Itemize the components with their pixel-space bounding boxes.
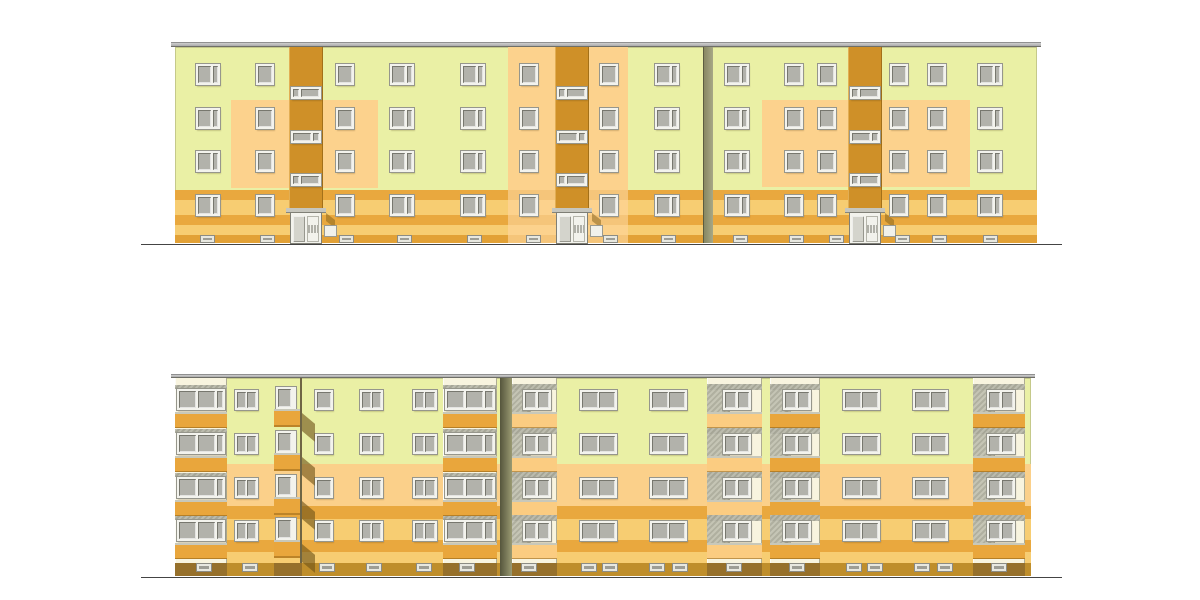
window: [785, 151, 803, 172]
window-pane: [657, 153, 670, 170]
window-pane: [237, 436, 246, 452]
window-pane: [1002, 436, 1013, 452]
window-pane: [392, 153, 405, 170]
window-pane: [466, 435, 483, 452]
window-pane: [213, 153, 218, 170]
stairwell-strip: [289, 47, 323, 213]
window-pane: [278, 433, 291, 451]
window-pane: [602, 110, 616, 127]
roof: [171, 42, 1041, 47]
window-pane: [915, 436, 930, 452]
window-pane: [820, 66, 834, 83]
window: [725, 195, 749, 216]
window-pane: [1002, 523, 1013, 539]
window: [600, 151, 618, 172]
window: [520, 108, 538, 129]
window: [725, 64, 749, 85]
balcony-glazing: [276, 518, 296, 540]
window-pane: [198, 110, 211, 127]
window: [978, 108, 1002, 129]
basement-vent: [604, 236, 617, 242]
balcony-glazing: [445, 433, 495, 454]
window-pane: [447, 435, 464, 452]
window-pane: [247, 392, 256, 408]
window-pane: [372, 436, 381, 452]
window-pane: [862, 523, 878, 539]
window: [843, 478, 880, 498]
window-pane: [198, 391, 215, 408]
vent-grille: [986, 238, 995, 240]
vent-grille: [729, 566, 739, 569]
window-pane: [742, 153, 747, 170]
window-pane: [915, 392, 930, 408]
window-pane: [862, 436, 878, 452]
basement-vent: [417, 564, 431, 571]
window-pane: [995, 197, 1000, 214]
balcony-parapet: [707, 500, 762, 516]
vent-grille: [917, 566, 927, 569]
window: [655, 108, 679, 129]
balcony-parapet: [770, 456, 820, 472]
window: [600, 195, 618, 216]
window-pane: [466, 479, 483, 496]
window-pane: [727, 110, 740, 127]
window-pane: [237, 480, 246, 496]
stack-plinth: [274, 563, 302, 576]
window: [913, 434, 948, 454]
window: [818, 151, 836, 172]
window-pane: [478, 153, 483, 170]
window-pane: [915, 523, 930, 539]
window-pane: [466, 391, 483, 408]
balcony-parapet: [973, 456, 1025, 472]
window: [461, 64, 485, 85]
balcony-parapet: [274, 497, 302, 515]
window-pane: [372, 392, 381, 408]
window: [890, 108, 908, 129]
balcony-parapet: [512, 500, 557, 516]
window-pane: [362, 480, 371, 496]
window-pane: [820, 110, 834, 127]
vent-grille: [675, 566, 685, 569]
window: [580, 434, 617, 454]
window-pane: [362, 392, 371, 408]
window-pane: [1002, 480, 1013, 496]
window-pane: [463, 153, 476, 170]
window: [235, 434, 258, 454]
window: [928, 64, 946, 85]
balcony-window: [523, 478, 551, 498]
window: [360, 434, 383, 454]
window-pane: [247, 436, 256, 452]
window-pane: [652, 436, 668, 452]
window: [978, 151, 1002, 172]
window-pane: [980, 153, 993, 170]
balcony-parapet: [512, 543, 557, 559]
vent-grille: [736, 238, 745, 240]
window: [360, 521, 383, 541]
balcony-parapet: [707, 456, 762, 472]
window-pane: [478, 110, 483, 127]
balcony-window: [723, 390, 751, 410]
window-pane: [317, 480, 331, 496]
window-pane: [258, 153, 272, 170]
door-leaf: [293, 216, 305, 242]
window-pane: [559, 89, 565, 97]
window-pane: [522, 153, 536, 170]
window: [580, 521, 617, 541]
window-pane: [599, 436, 615, 452]
window-pane: [179, 435, 196, 452]
window-pane: [407, 66, 412, 83]
window: [390, 64, 414, 85]
vent-grille: [935, 238, 944, 240]
landing-window: [557, 131, 587, 143]
door-sidelight-panes: [574, 225, 584, 233]
window-pane: [727, 197, 740, 214]
window-pane: [392, 110, 405, 127]
window-pane: [247, 523, 256, 539]
window: [390, 151, 414, 172]
window-pane: [317, 523, 331, 539]
balcony-parapet: [443, 456, 497, 472]
vent-grille: [792, 238, 801, 240]
window-pane: [198, 479, 215, 496]
window-pane: [217, 435, 223, 452]
window: [785, 64, 803, 85]
window-pane: [463, 66, 476, 83]
balcony-parapet: [770, 543, 820, 559]
window: [890, 64, 908, 85]
basement-vent: [847, 564, 861, 571]
window-pane: [582, 392, 598, 408]
balcony-parapet: [443, 412, 497, 428]
basement-vent: [790, 564, 804, 571]
window-pane: [338, 197, 352, 214]
window-pane: [652, 523, 668, 539]
vent-grille: [994, 566, 1004, 569]
window: [818, 64, 836, 85]
window-pane: [247, 480, 256, 496]
basement-vent: [261, 236, 274, 242]
balcony-glazing: [276, 475, 296, 497]
window-pane: [217, 479, 223, 496]
window-pane: [415, 523, 424, 539]
window-pane: [599, 480, 615, 496]
window: [360, 390, 383, 410]
balcony-window: [523, 521, 551, 541]
balcony-window: [723, 478, 751, 498]
balcony-parapet: [707, 543, 762, 559]
balcony-parapet: [512, 456, 557, 472]
window-pane: [582, 523, 598, 539]
window-pane: [179, 479, 196, 496]
window-pane: [278, 520, 291, 538]
window-pane: [798, 436, 809, 452]
window: [256, 108, 274, 129]
window-pane: [669, 392, 685, 408]
vent-grille: [524, 566, 534, 569]
window: [390, 195, 414, 216]
window: [913, 478, 948, 498]
window-pane: [995, 153, 1000, 170]
window-pane: [995, 66, 1000, 83]
basement-vent: [527, 236, 540, 242]
window-pane: [485, 435, 493, 452]
window-pane: [672, 153, 677, 170]
balcony-window: [723, 521, 751, 541]
window: [413, 478, 437, 498]
window-pane: [522, 197, 536, 214]
window-pane: [980, 110, 993, 127]
window-pane: [785, 523, 796, 539]
window-pane: [478, 197, 483, 214]
window-pane: [787, 66, 801, 83]
window: [235, 521, 258, 541]
balcony-window: [987, 521, 1015, 541]
window-pane: [362, 436, 371, 452]
window-pane: [582, 480, 598, 496]
balcony-parapet: [973, 500, 1025, 516]
vent-grille: [529, 238, 538, 240]
window-pane: [892, 153, 906, 170]
window: [913, 521, 948, 541]
balcony-edge-line: [300, 378, 302, 563]
window-pane: [217, 391, 223, 408]
balcony-glazing: [276, 431, 296, 453]
stairwell-strip: [555, 47, 589, 213]
window-pane: [293, 176, 299, 184]
window: [413, 434, 437, 454]
window: [315, 434, 333, 454]
window-pane: [407, 110, 412, 127]
window-pane: [317, 392, 331, 408]
window-pane: [931, 523, 946, 539]
window-pane: [525, 480, 536, 496]
vent-grille: [462, 566, 472, 569]
window-pane: [892, 197, 906, 214]
window-pane: [798, 523, 809, 539]
balcony-window: [783, 434, 811, 454]
vent-grille: [400, 238, 409, 240]
window-pane: [179, 391, 196, 408]
window-pane: [725, 480, 736, 496]
window-pane: [415, 392, 424, 408]
balcony-parapet: [274, 453, 302, 471]
stairwell-strip: [848, 47, 882, 213]
window-pane: [407, 153, 412, 170]
basement-vent: [468, 236, 481, 242]
window: [336, 108, 354, 129]
window-pane: [725, 392, 736, 408]
entrance-door: [850, 213, 880, 243]
window: [461, 195, 485, 216]
basement-vent: [340, 236, 353, 242]
balcony-glazing: [276, 387, 296, 409]
window-pane: [415, 436, 424, 452]
vent-grille: [940, 566, 950, 569]
window: [818, 195, 836, 216]
window: [785, 195, 803, 216]
window-pane: [258, 197, 272, 214]
basement-vent: [243, 564, 257, 571]
window: [928, 108, 946, 129]
balcony-window: [987, 478, 1015, 498]
balcony-window: [783, 478, 811, 498]
vent-grille: [652, 566, 662, 569]
window-pane: [892, 110, 906, 127]
window-pane: [742, 110, 747, 127]
window-pane: [485, 522, 493, 539]
window-pane: [852, 176, 858, 184]
window: [413, 521, 437, 541]
window-pane: [213, 197, 218, 214]
window-pane: [852, 89, 858, 97]
window-pane: [602, 153, 616, 170]
door-sidelight: [866, 216, 878, 242]
window: [196, 151, 220, 172]
basement-vent: [197, 564, 211, 571]
window: [196, 108, 220, 129]
window-pane: [372, 480, 381, 496]
window-pane: [669, 436, 685, 452]
window-pane: [931, 392, 946, 408]
landing-window: [850, 131, 880, 143]
balcony-window: [523, 390, 551, 410]
window-pane: [872, 133, 878, 141]
window-pane: [415, 480, 424, 496]
vent-grille: [584, 566, 594, 569]
balcony-glazing: [445, 477, 495, 498]
basement-vent: [984, 236, 997, 242]
window-pane: [525, 523, 536, 539]
balcony-parapet: [274, 540, 302, 558]
window-pane: [657, 197, 670, 214]
window: [196, 64, 220, 85]
window-pane: [798, 392, 809, 408]
window: [336, 195, 354, 216]
balcony-parapet: [175, 412, 227, 428]
window-pane: [217, 522, 223, 539]
window: [655, 195, 679, 216]
window-pane: [425, 523, 435, 539]
window-pane: [559, 176, 565, 184]
basement-vent: [398, 236, 411, 242]
vent-grille: [792, 566, 802, 569]
window-pane: [485, 479, 493, 496]
window-pane: [852, 133, 870, 141]
window: [580, 478, 617, 498]
window-pane: [602, 197, 616, 214]
window-pane: [820, 153, 834, 170]
landing-window: [557, 87, 587, 99]
window-pane: [198, 66, 211, 83]
door-sidelight: [307, 216, 319, 242]
window: [580, 390, 617, 410]
window: [978, 64, 1002, 85]
window-pane: [672, 110, 677, 127]
vent-grille: [870, 566, 880, 569]
window-pane: [657, 110, 670, 127]
vent-grille: [849, 566, 859, 569]
vent-grille: [419, 566, 429, 569]
window-pane: [989, 480, 1000, 496]
entrance-step: [884, 226, 895, 236]
basement-vent: [460, 564, 474, 571]
window-pane: [862, 480, 878, 496]
window-pane: [522, 66, 536, 83]
window: [390, 108, 414, 129]
window-pane: [599, 392, 615, 408]
window-pane: [672, 197, 677, 214]
window-pane: [372, 523, 381, 539]
basement-vent: [522, 564, 536, 571]
basement-vent: [896, 236, 909, 242]
window-pane: [989, 436, 1000, 452]
window: [913, 390, 948, 410]
window-pane: [478, 66, 483, 83]
window-pane: [672, 66, 677, 83]
window-pane: [522, 110, 536, 127]
window-pane: [559, 133, 577, 141]
window: [843, 521, 880, 541]
window-pane: [579, 133, 585, 141]
door-leaf: [559, 216, 571, 242]
window: [256, 64, 274, 85]
balcony-glazing: [177, 433, 225, 454]
window-pane: [338, 66, 352, 83]
window-pane: [278, 477, 291, 495]
window: [650, 478, 687, 498]
window-pane: [845, 436, 861, 452]
balcony-parapet: [443, 500, 497, 516]
window-pane: [198, 522, 215, 539]
balcony-parapet: [175, 456, 227, 472]
window: [890, 151, 908, 172]
window-pane: [237, 523, 246, 539]
balcony-parapet: [443, 543, 497, 559]
window: [890, 195, 908, 216]
vent-grille: [342, 238, 351, 240]
balcony-parapet: [175, 543, 227, 559]
window: [843, 434, 880, 454]
balcony-parapet: [707, 412, 762, 428]
window-pane: [582, 436, 598, 452]
entrance-step: [591, 226, 602, 236]
balcony-window: [523, 434, 551, 454]
window-pane: [392, 197, 405, 214]
basement-vent: [915, 564, 929, 571]
window: [520, 195, 538, 216]
window: [655, 64, 679, 85]
landing-window: [291, 131, 321, 143]
door-sidelight: [573, 216, 585, 242]
vent-grille: [203, 238, 212, 240]
window-pane: [725, 523, 736, 539]
expansion-joint: [500, 378, 512, 576]
vent-grille: [199, 566, 209, 569]
window-pane: [820, 197, 834, 214]
window-pane: [293, 133, 311, 141]
vent-grille: [605, 566, 615, 569]
basement-vent: [790, 236, 803, 242]
entrance-step: [325, 226, 336, 236]
window: [928, 195, 946, 216]
window-pane: [930, 197, 944, 214]
balcony-glazing: [177, 477, 225, 498]
door-sidelight-panes: [867, 225, 877, 233]
window-pane: [845, 392, 861, 408]
